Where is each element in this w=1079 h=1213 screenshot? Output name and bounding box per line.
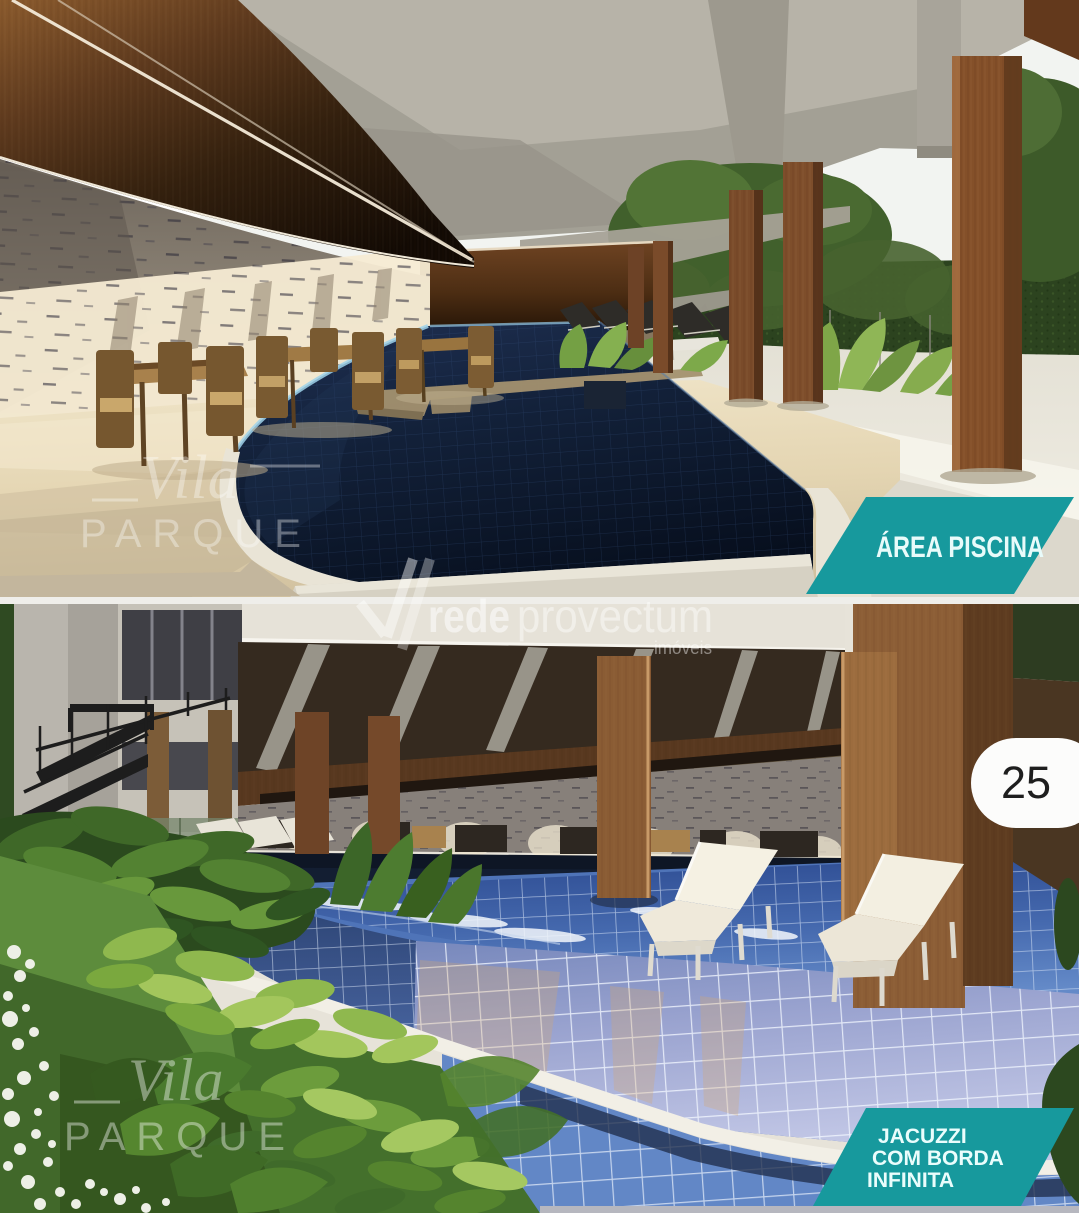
svg-text:25: 25 (1001, 757, 1051, 808)
svg-text:PARQUE: PARQUE (64, 1115, 296, 1159)
svg-text:INFINITA: INFINITA (867, 1169, 954, 1192)
svg-text:PARQUE: PARQUE (80, 512, 312, 556)
svg-text:COM BORDA: COM BORDA (872, 1147, 1004, 1170)
svg-text:JACUZZI: JACUZZI (878, 1125, 967, 1148)
svg-text:Vila: Vila (140, 444, 239, 512)
svg-text:ÁREA PISCINA: ÁREA PISCINA (876, 530, 1044, 564)
svg-text:Vila: Vila (128, 1047, 224, 1113)
